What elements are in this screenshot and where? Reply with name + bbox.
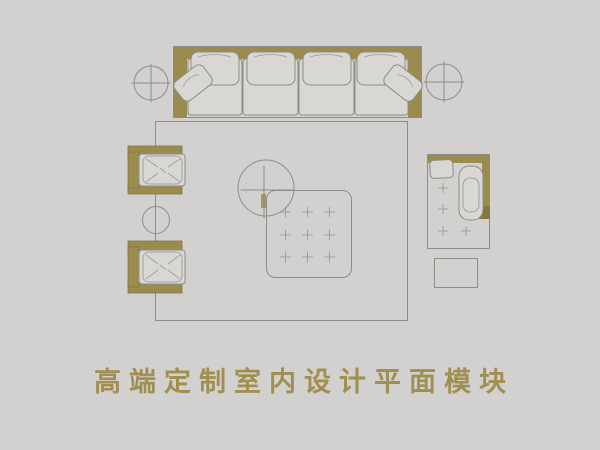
chaise-lounge-chair bbox=[428, 155, 491, 249]
crosshair-side-table-right bbox=[424, 62, 464, 102]
tufted-ottoman bbox=[267, 191, 352, 278]
four-seat-sofa bbox=[171, 47, 424, 118]
crosshair-side-table-left bbox=[132, 64, 170, 102]
area-rug bbox=[156, 122, 408, 321]
poster-canvas: 高端定制室内设计平面模块 bbox=[0, 0, 600, 450]
armchair-upper bbox=[128, 146, 185, 194]
armchair-lower bbox=[128, 241, 185, 293]
poster-title: 高端定制室内设计平面模块 bbox=[0, 366, 600, 400]
side-stool bbox=[435, 259, 478, 288]
